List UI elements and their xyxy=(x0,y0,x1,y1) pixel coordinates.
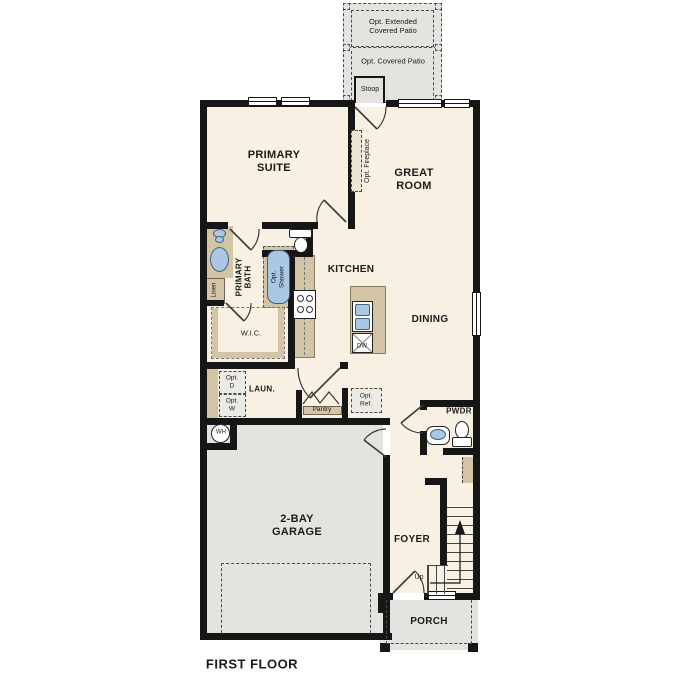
patio-post-icon xyxy=(343,3,350,10)
window xyxy=(398,99,442,108)
window xyxy=(444,99,470,108)
wall xyxy=(443,448,480,455)
wall xyxy=(378,593,393,600)
wall xyxy=(473,100,480,593)
patio-divider xyxy=(343,47,442,48)
wall xyxy=(207,443,237,450)
label-up: Up xyxy=(415,574,424,582)
label-wic: W.I.C. xyxy=(241,330,261,339)
wall xyxy=(200,362,295,369)
porch-corner xyxy=(468,643,478,652)
label-dishwasher: DW xyxy=(357,343,367,350)
label-opt-fridge: Opt. Ref. xyxy=(360,392,372,407)
label-kitchen: KITCHEN xyxy=(328,264,375,276)
sink-basin-icon xyxy=(355,318,370,330)
burner-icon xyxy=(306,306,313,313)
wall xyxy=(296,390,302,418)
label-primary-suite: PRIMARY SUITE xyxy=(248,149,300,175)
pwdr-sink-basin-icon xyxy=(430,429,446,440)
opt-fireplace-outline xyxy=(351,130,362,192)
stair-landing xyxy=(427,565,448,594)
wall xyxy=(202,300,224,306)
label-great-room: GREAT ROOM xyxy=(394,167,433,193)
stove-icon xyxy=(293,290,316,319)
label-linen: Linen xyxy=(211,283,218,298)
stairs xyxy=(447,507,473,593)
bath-toilet-bowl-icon xyxy=(294,237,308,253)
label-covered-patio: Opt. Covered Patio xyxy=(361,58,425,67)
wall xyxy=(200,418,390,425)
wall xyxy=(440,485,447,565)
wall xyxy=(425,478,447,485)
label-primary-bath: PRIMARY BATH xyxy=(235,258,254,297)
wall xyxy=(230,425,237,445)
garage-door-outline xyxy=(221,563,371,633)
label-powder: PWDR xyxy=(446,406,472,415)
patio-post-icon xyxy=(343,44,350,51)
label-pantry: Pantry xyxy=(313,406,332,414)
wall xyxy=(456,593,480,600)
wall xyxy=(200,100,207,640)
window xyxy=(472,292,481,336)
wall xyxy=(200,222,228,229)
label-opt-shower: Opt. Shower xyxy=(270,266,285,288)
laundry-cabinet xyxy=(206,368,218,418)
floor-plan: Opt. Extended Covered Patio Opt. Covered… xyxy=(0,0,687,687)
sink-basin-icon xyxy=(355,304,370,316)
label-stoop: Stoop xyxy=(361,86,379,94)
wall xyxy=(200,633,392,640)
label-extended-patio: Opt. Extended Covered Patio xyxy=(369,18,417,36)
label-dining: DINING xyxy=(412,314,449,326)
window xyxy=(281,97,310,106)
window xyxy=(248,97,277,106)
label-water-heater: WH xyxy=(216,429,226,436)
page-title: FIRST FLOOR xyxy=(206,656,298,671)
porch-corner xyxy=(380,643,390,652)
opt-fixture-icon xyxy=(215,236,224,243)
wall xyxy=(420,400,427,410)
wall xyxy=(342,388,348,418)
patio-post-icon xyxy=(435,44,442,51)
burner-icon xyxy=(306,295,313,302)
patio-post-icon xyxy=(435,3,442,10)
label-laundry: LAUN. xyxy=(249,384,275,393)
label-opt-fireplace: Opt. Fireplace xyxy=(364,139,372,183)
pwdr-toilet-tank-icon xyxy=(452,437,472,447)
burner-icon xyxy=(297,306,304,313)
label-opt-dryer: Opt. D xyxy=(226,374,238,389)
wall xyxy=(340,362,348,369)
label-opt-washer: Opt. W xyxy=(226,397,238,412)
label-foyer: FOYER xyxy=(394,534,430,546)
label-garage: 2-BAY GARAGE xyxy=(272,513,322,539)
label-porch: PORCH xyxy=(410,616,448,628)
burner-icon xyxy=(297,295,304,302)
vanity-sink-icon xyxy=(210,247,229,272)
